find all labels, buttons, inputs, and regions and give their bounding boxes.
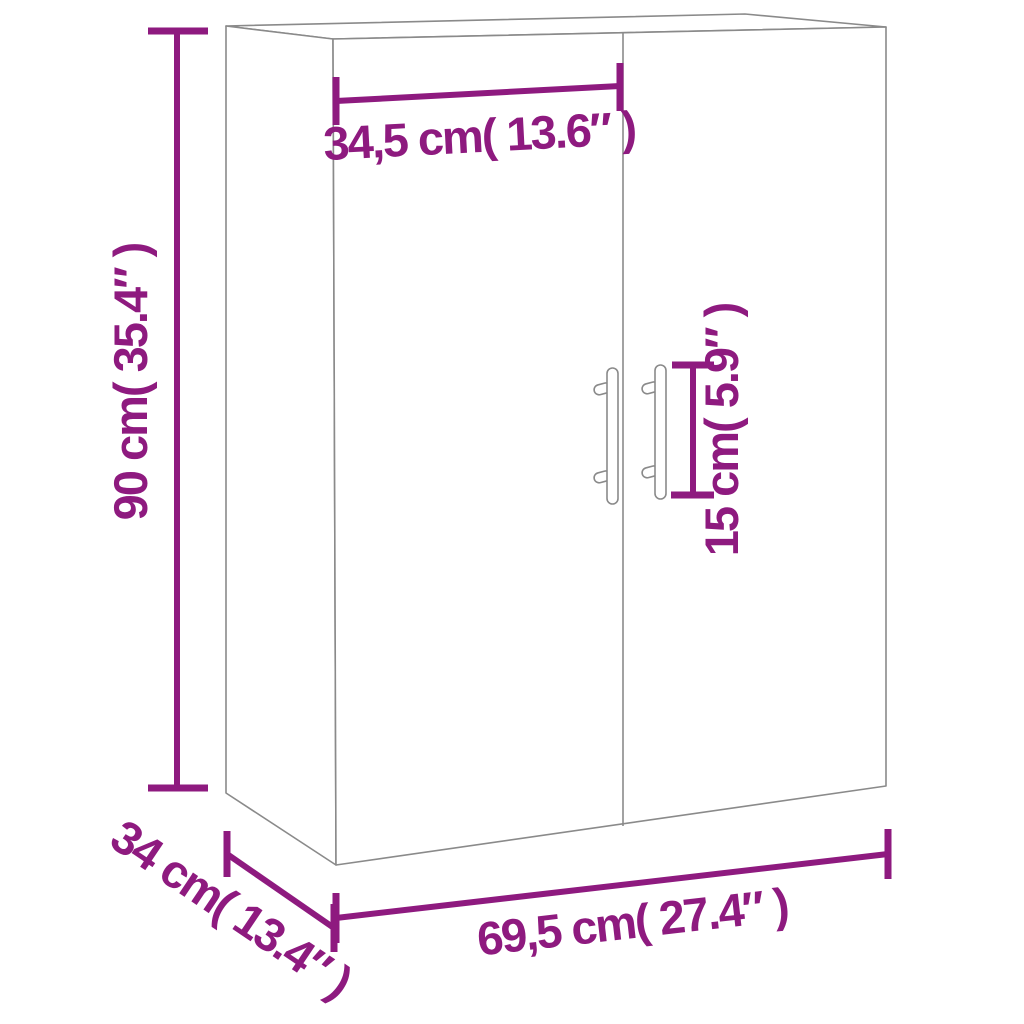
dimension-width-label: 69,5 cm( 27.4″ )	[474, 878, 790, 966]
dimension-height-label: 90 cm( 35.4″ )	[104, 243, 157, 520]
dimension-height: 90 cm( 35.4″ )	[104, 31, 208, 788]
product-dimension-diagram: 90 cm( 35.4″ ) 34,5 cm( 13.6″ ) 15 cm( 5…	[0, 0, 1024, 1024]
left-handle-bar	[607, 368, 618, 504]
cabinet-side-panel	[226, 26, 336, 865]
right-handle-bar	[655, 365, 666, 499]
dimension-handle-height-label: 15 cm( 5.9″ )	[695, 303, 748, 556]
cabinet-diagram-canvas: 90 cm( 35.4″ ) 34,5 cm( 13.6″ ) 15 cm( 5…	[0, 0, 1024, 1024]
